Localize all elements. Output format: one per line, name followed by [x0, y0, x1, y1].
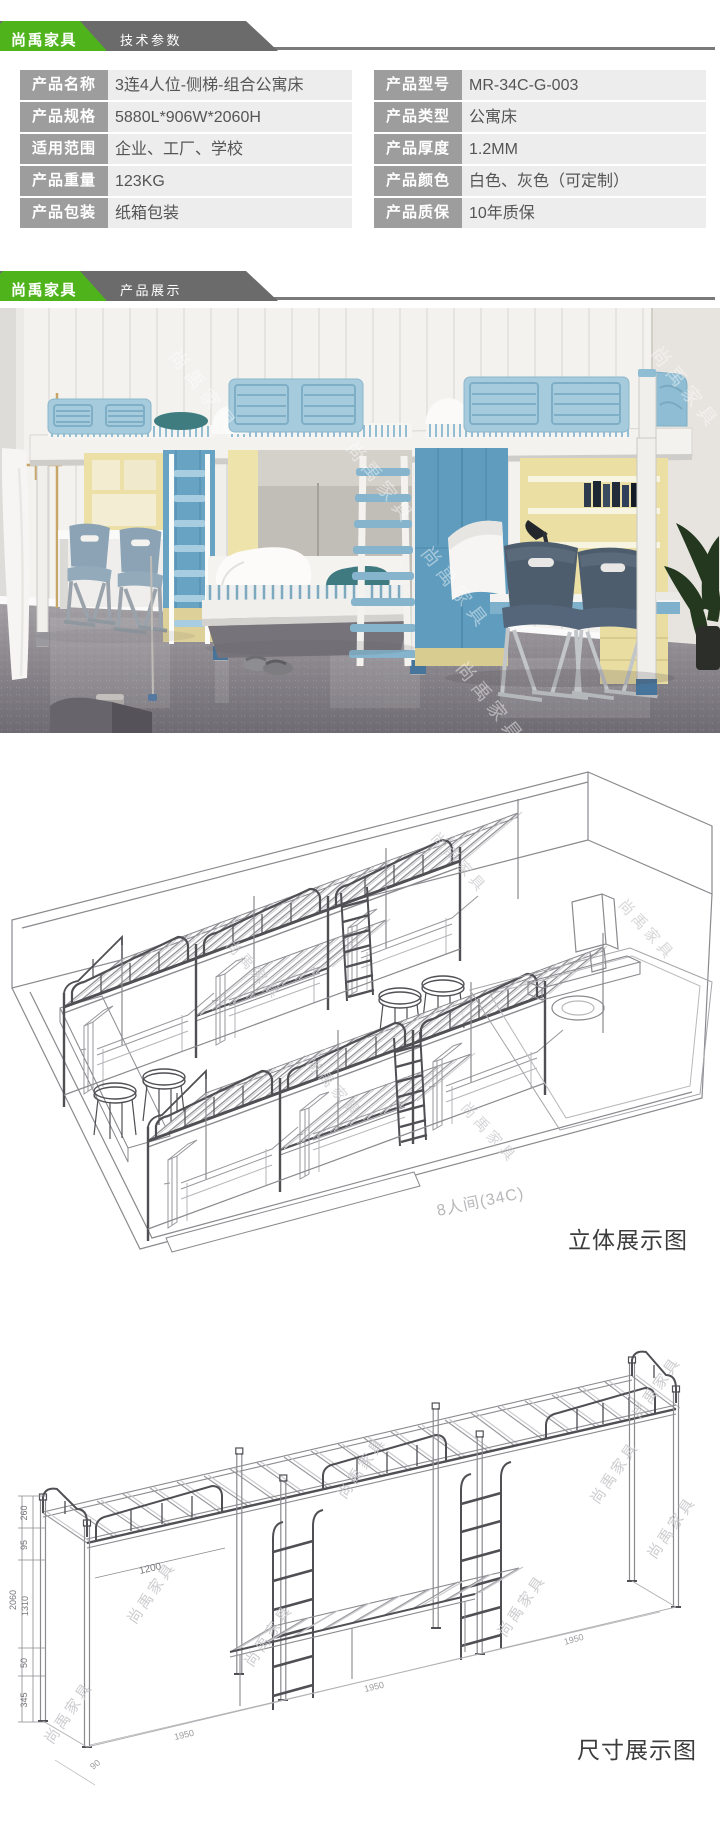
svg-text:尚禹家具: 尚禹家具 [494, 1572, 549, 1641]
svg-text:2060: 2060 [8, 1590, 18, 1610]
svg-text:50: 50 [19, 1658, 29, 1668]
svg-text:尚禹家具: 尚禹家具 [241, 1602, 296, 1671]
svg-text:1310: 1310 [20, 1596, 30, 1616]
svg-text:尚禹家具: 尚禹家具 [615, 896, 678, 964]
svg-text:260: 260 [19, 1505, 29, 1520]
svg-text:尚禹家具: 尚禹家具 [41, 1679, 96, 1748]
svg-text:1950: 1950 [363, 1680, 385, 1694]
svg-text:尚禹家具: 尚禹家具 [457, 1099, 520, 1167]
svg-text:90: 90 [88, 1758, 102, 1772]
svg-text:95: 95 [19, 1540, 29, 1550]
svg-text:1950: 1950 [173, 1728, 195, 1742]
svg-text:345: 345 [19, 1692, 29, 1707]
svg-text:8人间(34C): 8人间(34C) [435, 1184, 526, 1220]
svg-text:尚禹家具: 尚禹家具 [644, 1494, 699, 1563]
